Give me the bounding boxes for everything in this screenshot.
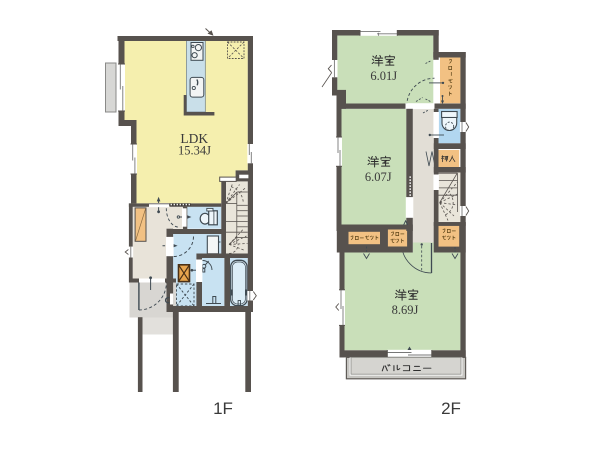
svg-text:8.69J: 8.69J	[392, 303, 419, 317]
svg-text:2F: 2F	[441, 399, 461, 418]
svg-text:15.34J: 15.34J	[178, 144, 211, 158]
svg-text:6.07J: 6.07J	[365, 170, 392, 184]
svg-text:1F: 1F	[213, 399, 233, 418]
svg-text:6.01J: 6.01J	[370, 69, 397, 83]
